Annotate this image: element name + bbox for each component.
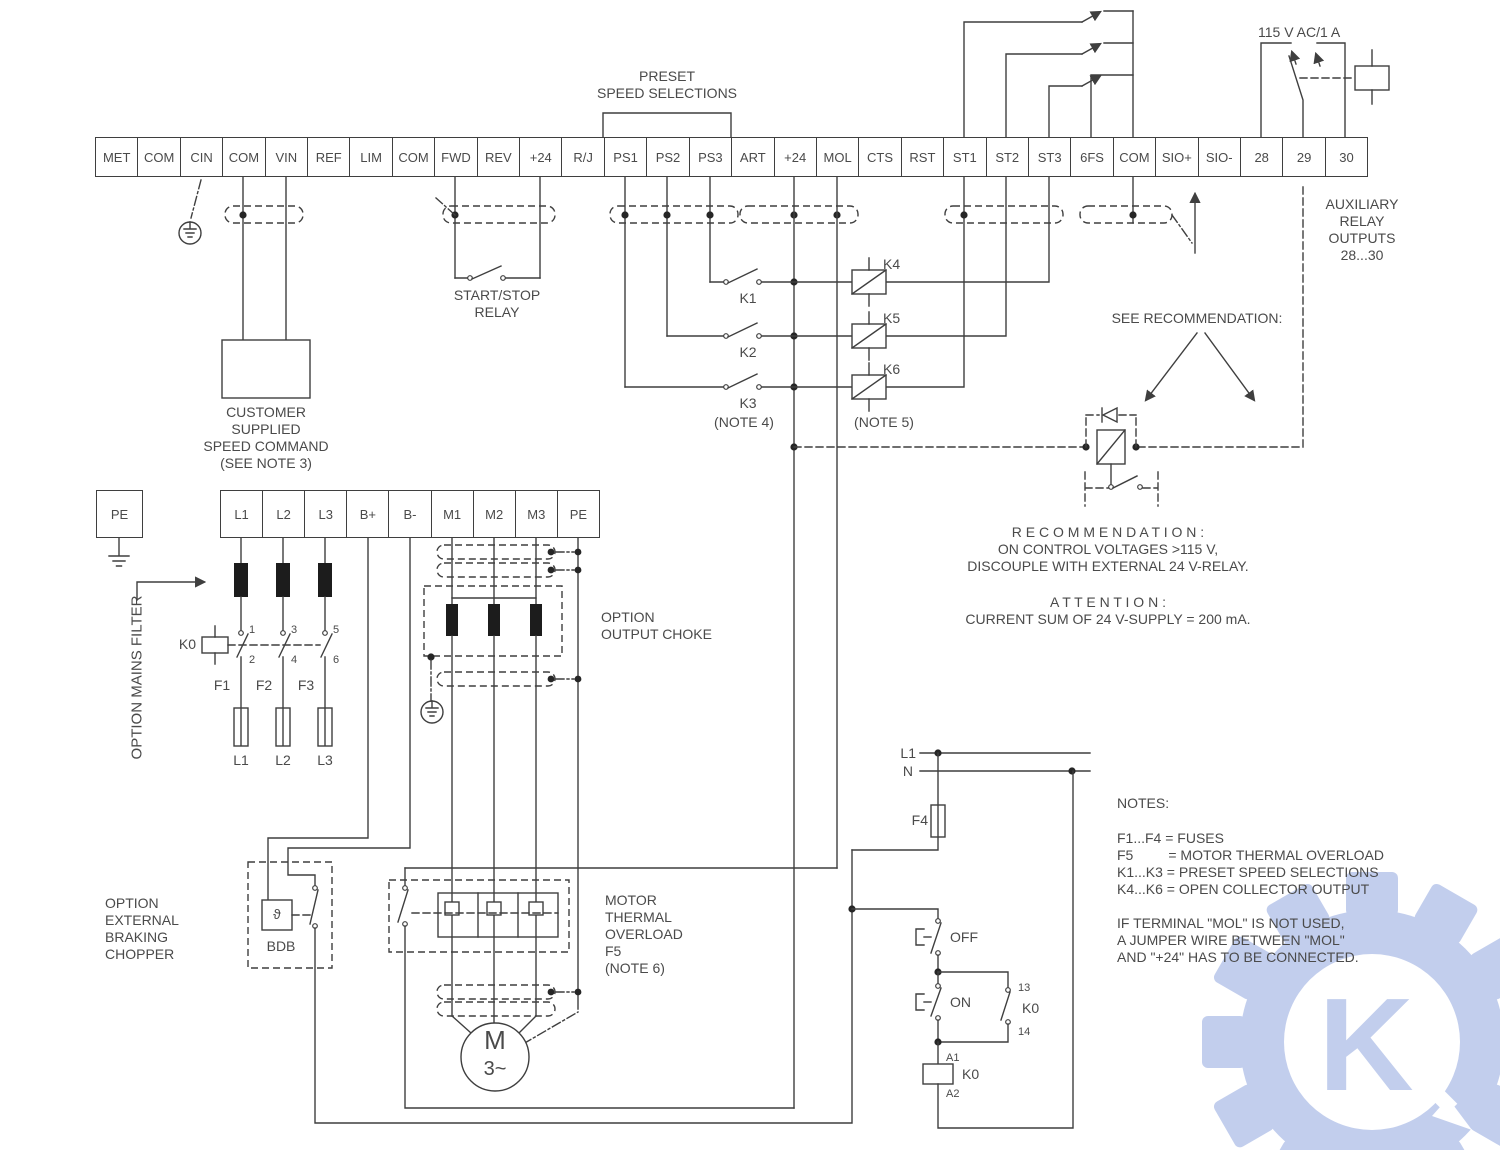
braking-line-0: OPTION <box>105 895 179 912</box>
terminal-25: SIO+ <box>1155 138 1197 176</box>
notes-warning-line-1: A JUMPER WIRE BETWEEN "MOL" <box>1117 932 1359 949</box>
aux-relay-line-1: RELAY <box>1326 213 1399 230</box>
k4-k6-output-coils <box>852 258 886 411</box>
power-terminal-0: L1 <box>221 491 262 537</box>
terminal-15: ART <box>731 138 773 176</box>
option-braking-chopper-label: OPTIONEXTERNALBRAKINGCHOPPER <box>105 895 179 963</box>
k0-contactor-label: K0 <box>179 636 196 653</box>
terminal-7: COM <box>392 138 434 176</box>
overload-line-4: (NOTE 6) <box>605 960 683 977</box>
start-stop-relay-wiring <box>436 177 555 280</box>
power-terminal-5: M1 <box>431 491 473 537</box>
terminal-26: SIO- <box>1198 138 1240 176</box>
terminal-10: +24 <box>519 138 561 176</box>
power-terminal-7: M3 <box>515 491 557 537</box>
k4-label: K4 <box>883 256 900 273</box>
power-terminal-3: B+ <box>346 491 388 537</box>
note5-label: (NOTE 5) <box>854 414 914 431</box>
f3-label: F3 <box>298 677 314 694</box>
terminal-0: MET <box>96 138 137 176</box>
terminal-27: 28 <box>1240 138 1282 176</box>
contact-4: 4 <box>291 654 297 666</box>
terminal-1: COM <box>137 138 179 176</box>
k0-contact-label: K0 <box>1022 1000 1039 1017</box>
aux-relay-line-0: AUXILIARY <box>1326 196 1399 213</box>
k0-coil-label: K0 <box>962 1066 979 1083</box>
motor-cable-shields <box>437 538 581 1047</box>
contact-5: 5 <box>333 624 339 636</box>
braking-line-3: CHOPPER <box>105 946 179 963</box>
motor-overload-label: MOTORTHERMALOVERLOADF5(NOTE 6) <box>605 892 683 977</box>
terminal-17: MOL <box>816 138 858 176</box>
recommendation-relay <box>1085 408 1158 506</box>
a1-label: A1 <box>946 1052 959 1064</box>
start-stop-line-1: RELAY <box>454 304 540 321</box>
attention-line-1: CURRENT SUM OF 24 V-SUPPLY = 200 mA. <box>965 611 1250 628</box>
terminal-29: 30 <box>1325 138 1367 176</box>
customer-line-1: SUPPLIED <box>203 421 328 438</box>
terminal-9: REV <box>477 138 519 176</box>
k2-label: K2 <box>739 344 756 361</box>
recommendation-text: R E C O M M E N D A T I O N :ON CONTROL … <box>967 524 1248 575</box>
overload-line-3: F5 <box>605 943 683 960</box>
f2-label: F2 <box>256 677 272 694</box>
k3-label: K3 <box>739 395 756 412</box>
output-choke <box>421 538 562 1023</box>
preset-speed-bracket <box>603 113 731 137</box>
k6-label: K6 <box>883 361 900 378</box>
terminal-28: 29 <box>1282 138 1324 176</box>
recommendation-line-1: ON CONTROL VOLTAGES >115 V, <box>967 541 1248 558</box>
notes-def-line-0: F1...F4 = FUSES <box>1117 830 1384 847</box>
terminal-23: 6FS <box>1070 138 1112 176</box>
theta-symbol: ϑ <box>273 906 281 923</box>
notes-title: NOTES: <box>1117 795 1169 812</box>
overload-line-0: MOTOR <box>605 892 683 909</box>
power-terminal-8: PE <box>557 491 599 537</box>
control-terminal-strip: METCOMCINCOMVINREFLIMCOMFWDREV+24R/JPS1P… <box>95 137 1368 177</box>
terminal-19: RST <box>901 138 943 176</box>
terminal-5: REF <box>307 138 349 176</box>
option-output-choke-label: OPTIONOUTPUT CHOKE <box>601 609 712 643</box>
f4-label: F4 <box>912 812 928 829</box>
terminal-14: PS3 <box>689 138 731 176</box>
l1-in-label: L1 <box>233 752 249 769</box>
power-terminal-strip: L1L2L3B+B-M1M2M3PE <box>220 490 600 538</box>
contact-14-label: 14 <box>1018 1026 1030 1038</box>
aux-115v-relay <box>1261 43 1389 137</box>
f1-label: F1 <box>214 677 230 694</box>
power-terminal-1: L2 <box>262 491 304 537</box>
notes-def-line-1: F5 = MOTOR THERMAL OVERLOAD <box>1117 847 1384 864</box>
contact-3: 3 <box>291 624 297 636</box>
on-label: ON <box>950 994 971 1011</box>
see-recommendation-arrows <box>1146 333 1254 400</box>
notes-def-line-2: K1...K3 = PRESET SPEED SELECTIONS <box>1117 864 1384 881</box>
overload-line-1: THERMAL <box>605 909 683 926</box>
customer-line-0: CUSTOMER <box>203 404 328 421</box>
aux-relay-line-3: 28...30 <box>1326 247 1399 264</box>
k5-label: K5 <box>883 310 900 327</box>
customer-supplied-label: CUSTOMERSUPPLIEDSPEED COMMAND(SEE NOTE 3… <box>203 404 328 472</box>
notes-definitions: F1...F4 = FUSESF5 = MOTOR THERMAL OVERLO… <box>1117 830 1384 898</box>
terminal-13: PS2 <box>646 138 688 176</box>
note4-label: (NOTE 4) <box>714 414 774 431</box>
terminal-24: COM <box>1113 138 1155 176</box>
terminal-2: CIN <box>180 138 222 176</box>
preset-line-1: SPEED SELECTIONS <box>597 85 737 102</box>
bdb-label: BDB <box>267 938 296 955</box>
motor-phases-label: 3~ <box>484 1061 507 1078</box>
overload-line-2: OVERLOAD <box>605 926 683 943</box>
notes-def-line-3: K4...K6 = OPEN COLLECTOR OUTPUT <box>1117 881 1384 898</box>
terminal-3: COM <box>222 138 264 176</box>
terminal-8: FWD <box>434 138 476 176</box>
option-mains-filter-label: OPTION MAINS FILTER <box>129 558 146 798</box>
notes-warning-line-2: AND "+24" HAS TO BE CONNECTED. <box>1117 949 1359 966</box>
k1-label: K1 <box>739 290 756 307</box>
terminal-22: ST3 <box>1028 138 1070 176</box>
recommendation-line-0: R E C O M M E N D A T I O N : <box>967 524 1248 541</box>
aux-relay-line-2: OUTPUTS <box>1326 230 1399 247</box>
bdb-chopper <box>248 850 852 1123</box>
l2-in-label: L2 <box>275 752 291 769</box>
start-stop-line-0: START/STOP <box>454 287 540 304</box>
choke-line-1: OUTPUT CHOKE <box>601 626 712 643</box>
preset-speed-label: PRESETSPEED SELECTIONS <box>597 68 737 102</box>
braking-line-1: EXTERNAL <box>105 912 179 929</box>
contact-13-label: 13 <box>1018 982 1030 994</box>
terminal-6: LIM <box>349 138 391 176</box>
terminal-11: R/J <box>561 138 603 176</box>
a2-label: A2 <box>946 1088 959 1100</box>
voltage-rating-label: 115 V AC/1 A <box>1258 24 1340 41</box>
mains-filter-section <box>137 538 332 630</box>
customer-line-3: (SEE NOTE 3) <box>203 455 328 472</box>
customer-line-2: SPEED COMMAND <box>203 438 328 455</box>
customer-speed-command-wiring <box>222 177 310 398</box>
attention-line-0: A T T E N T I O N : <box>965 594 1250 611</box>
choke-line-0: OPTION <box>601 609 712 626</box>
power-terminal-2: L3 <box>304 491 346 537</box>
terminal-18: CTS <box>858 138 900 176</box>
aux-relay-outputs-label: AUXILIARYRELAYOUTPUTS28...30 <box>1326 196 1399 264</box>
motor-m-label: M <box>484 1032 506 1049</box>
pe-terminal: PE <box>96 490 143 538</box>
preset-line-0: PRESET <box>597 68 737 85</box>
power-terminal-6: M2 <box>473 491 515 537</box>
contact-6: 6 <box>333 654 339 666</box>
control-n-label: N <box>903 763 913 780</box>
attention-text: A T T E N T I O N :CURRENT SUM OF 24 V-S… <box>965 594 1250 628</box>
st-open-collector-outputs <box>964 11 1172 223</box>
plus24-mol-buses <box>740 177 858 1108</box>
terminal-20: ST1 <box>943 138 985 176</box>
recommendation-line-2: DISCOUPLE WITH EXTERNAL 24 V-RELAY. <box>967 558 1248 575</box>
l3-in-label: L3 <box>317 752 333 769</box>
aux-connection-arrow <box>1172 194 1195 253</box>
terminal-4: VIN <box>265 138 307 176</box>
pe-ground-symbol <box>109 538 129 566</box>
contact-2: 2 <box>249 654 255 666</box>
see-recommendation-label: SEE RECOMMENDATION: <box>1112 310 1283 327</box>
control-l1-label: L1 <box>900 745 916 762</box>
notes-warning: IF TERMINAL "MOL" IS NOT USED,A JUMPER W… <box>1117 915 1359 966</box>
start-stop-relay-label: START/STOPRELAY <box>454 287 540 321</box>
left-shield-ground <box>179 180 201 244</box>
power-terminal-4: B- <box>388 491 430 537</box>
contact-1: 1 <box>249 624 255 636</box>
braking-line-2: BRAKING <box>105 929 179 946</box>
k1-k3-switch-rows <box>625 177 1063 389</box>
terminal-12: PS1 <box>604 138 646 176</box>
terminal-16: +24 <box>774 138 816 176</box>
wiring-diagram-page: K <box>0 0 1500 1150</box>
terminal-21: ST2 <box>986 138 1028 176</box>
off-label: OFF <box>950 929 978 946</box>
notes-warning-line-0: IF TERMINAL "MOL" IS NOT USED, <box>1117 915 1359 932</box>
